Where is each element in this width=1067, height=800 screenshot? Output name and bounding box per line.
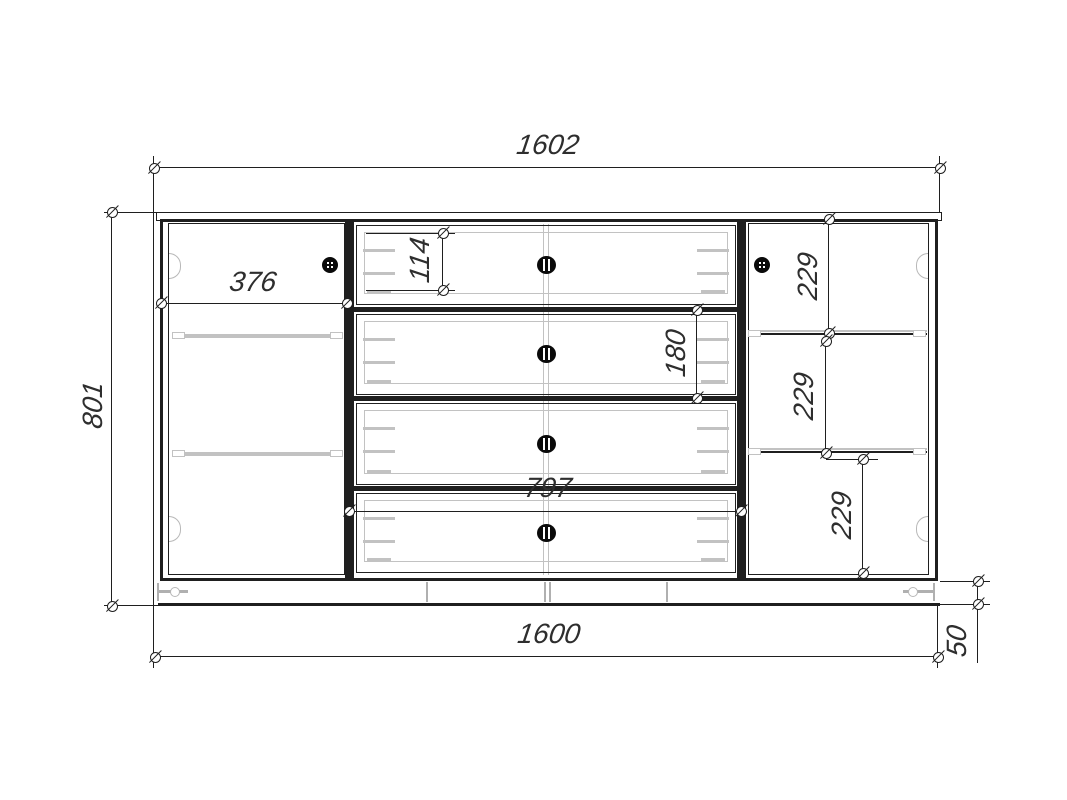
dim-marker <box>149 163 160 174</box>
dim-marker <box>438 228 449 239</box>
dim-marker <box>858 454 869 465</box>
drawer-slide <box>363 540 395 543</box>
extension-line-left <box>153 156 154 668</box>
dim-line-drawer-height <box>696 310 697 398</box>
slide-bracket <box>367 558 391 562</box>
foot-screw-icon <box>908 587 918 597</box>
shelf-pin <box>913 330 926 337</box>
leg <box>549 582 551 602</box>
drawer-knob-icon <box>537 435 556 453</box>
dim-marker <box>107 601 118 612</box>
dim-line-right-gap-bottom <box>862 459 863 573</box>
drawer-slide <box>363 517 395 520</box>
door-knob-icon <box>754 257 770 273</box>
dim-marker <box>973 599 984 610</box>
shelf-pin <box>330 450 343 457</box>
slide-bracket <box>367 380 391 384</box>
slide-bracket <box>701 290 725 294</box>
drawer-slide <box>363 338 395 341</box>
drawer-slide <box>363 361 395 364</box>
dim-line-left-door <box>161 303 347 304</box>
right-shelf-1-top <box>749 330 927 332</box>
door-knob-icon <box>322 257 338 273</box>
dim-line-overall-width <box>153 167 940 168</box>
foot-screw-icon <box>170 587 180 597</box>
dim-marker <box>736 506 747 517</box>
dim-line-plinth <box>977 581 978 663</box>
dim-carcass-width-label: 1600 <box>516 620 582 648</box>
drawer-knob-icon <box>537 345 556 363</box>
dim-line-top-drawer <box>442 233 443 290</box>
dim-marker <box>935 163 946 174</box>
dim-overall-height-label: 801 <box>79 380 107 431</box>
dim-line-drawer-width <box>349 511 741 512</box>
dim-marker <box>150 652 161 663</box>
slide-bracket <box>701 558 725 562</box>
shelf-pin <box>748 330 761 337</box>
drawer-slide <box>363 427 395 430</box>
shelf-pin <box>172 332 185 339</box>
right-shelf-2 <box>749 451 927 453</box>
drawer-knob-icon <box>537 256 556 274</box>
shelf-pin <box>172 450 185 457</box>
dim-line-carcass-width <box>155 656 938 657</box>
leg <box>544 582 546 602</box>
dim-drawer-width-label: 797 <box>523 474 574 502</box>
shelf-pin <box>913 448 926 455</box>
drawer-slide <box>363 249 395 252</box>
dim-marker <box>438 285 449 296</box>
left-shelf-1 <box>173 334 343 338</box>
drawer-slide <box>697 272 729 275</box>
extension-line-229-bottom <box>826 459 878 460</box>
dim-marker <box>973 576 984 587</box>
dim-overall-width-label: 1602 <box>515 131 581 159</box>
dim-drawer-height-label: 180 <box>662 328 690 379</box>
dim-marker <box>692 393 703 404</box>
shelf-pin <box>748 448 761 455</box>
slide-bracket <box>701 380 725 384</box>
drawer-slide <box>363 272 395 275</box>
drawer-separator-1 <box>346 307 746 312</box>
right-shelf-1 <box>749 333 927 335</box>
drawer-slide <box>697 338 729 341</box>
dim-marker <box>342 298 353 309</box>
shelf-pin <box>330 332 343 339</box>
drawer-slide <box>697 249 729 252</box>
dim-marker <box>107 207 118 218</box>
dim-marker <box>344 506 355 517</box>
drawer-slide <box>697 361 729 364</box>
dim-left-door-width-label: 376 <box>228 268 279 296</box>
dim-marker <box>821 448 832 459</box>
slide-bracket <box>701 470 725 474</box>
left-shelf-2 <box>173 452 343 456</box>
dim-plinth-height-label: 50 <box>943 623 971 658</box>
dim-right-gap-bottom-label: 229 <box>828 490 856 541</box>
drawer-slide <box>697 540 729 543</box>
dim-top-drawer-height-label: 114 <box>406 236 434 285</box>
dim-marker <box>858 568 869 579</box>
drawer-slide <box>363 450 395 453</box>
drawer-slide <box>697 450 729 453</box>
leg <box>426 582 428 602</box>
dim-right-gap-middle-label: 229 <box>790 371 818 422</box>
drawer-knob-icon <box>537 524 556 542</box>
drawer-separator-2 <box>346 396 746 401</box>
technical-drawing-canvas: 1602 801 376 114 180 797 229 229 229 160… <box>0 0 1067 800</box>
dim-line-right-gap-top <box>828 219 829 333</box>
leg <box>666 582 668 602</box>
right-shelf-2-top <box>749 448 927 450</box>
dim-marker <box>821 336 832 347</box>
dim-marker <box>156 298 167 309</box>
slide-bracket <box>367 470 391 474</box>
floor-line <box>158 603 940 606</box>
drawer-slide <box>697 517 729 520</box>
drawer-slide <box>697 427 729 430</box>
dim-marker <box>692 305 703 316</box>
dim-line-right-gap-middle <box>825 341 826 453</box>
dim-line-overall-height <box>111 212 112 606</box>
dim-marker <box>824 214 835 225</box>
dim-right-gap-top-label: 229 <box>794 251 822 302</box>
